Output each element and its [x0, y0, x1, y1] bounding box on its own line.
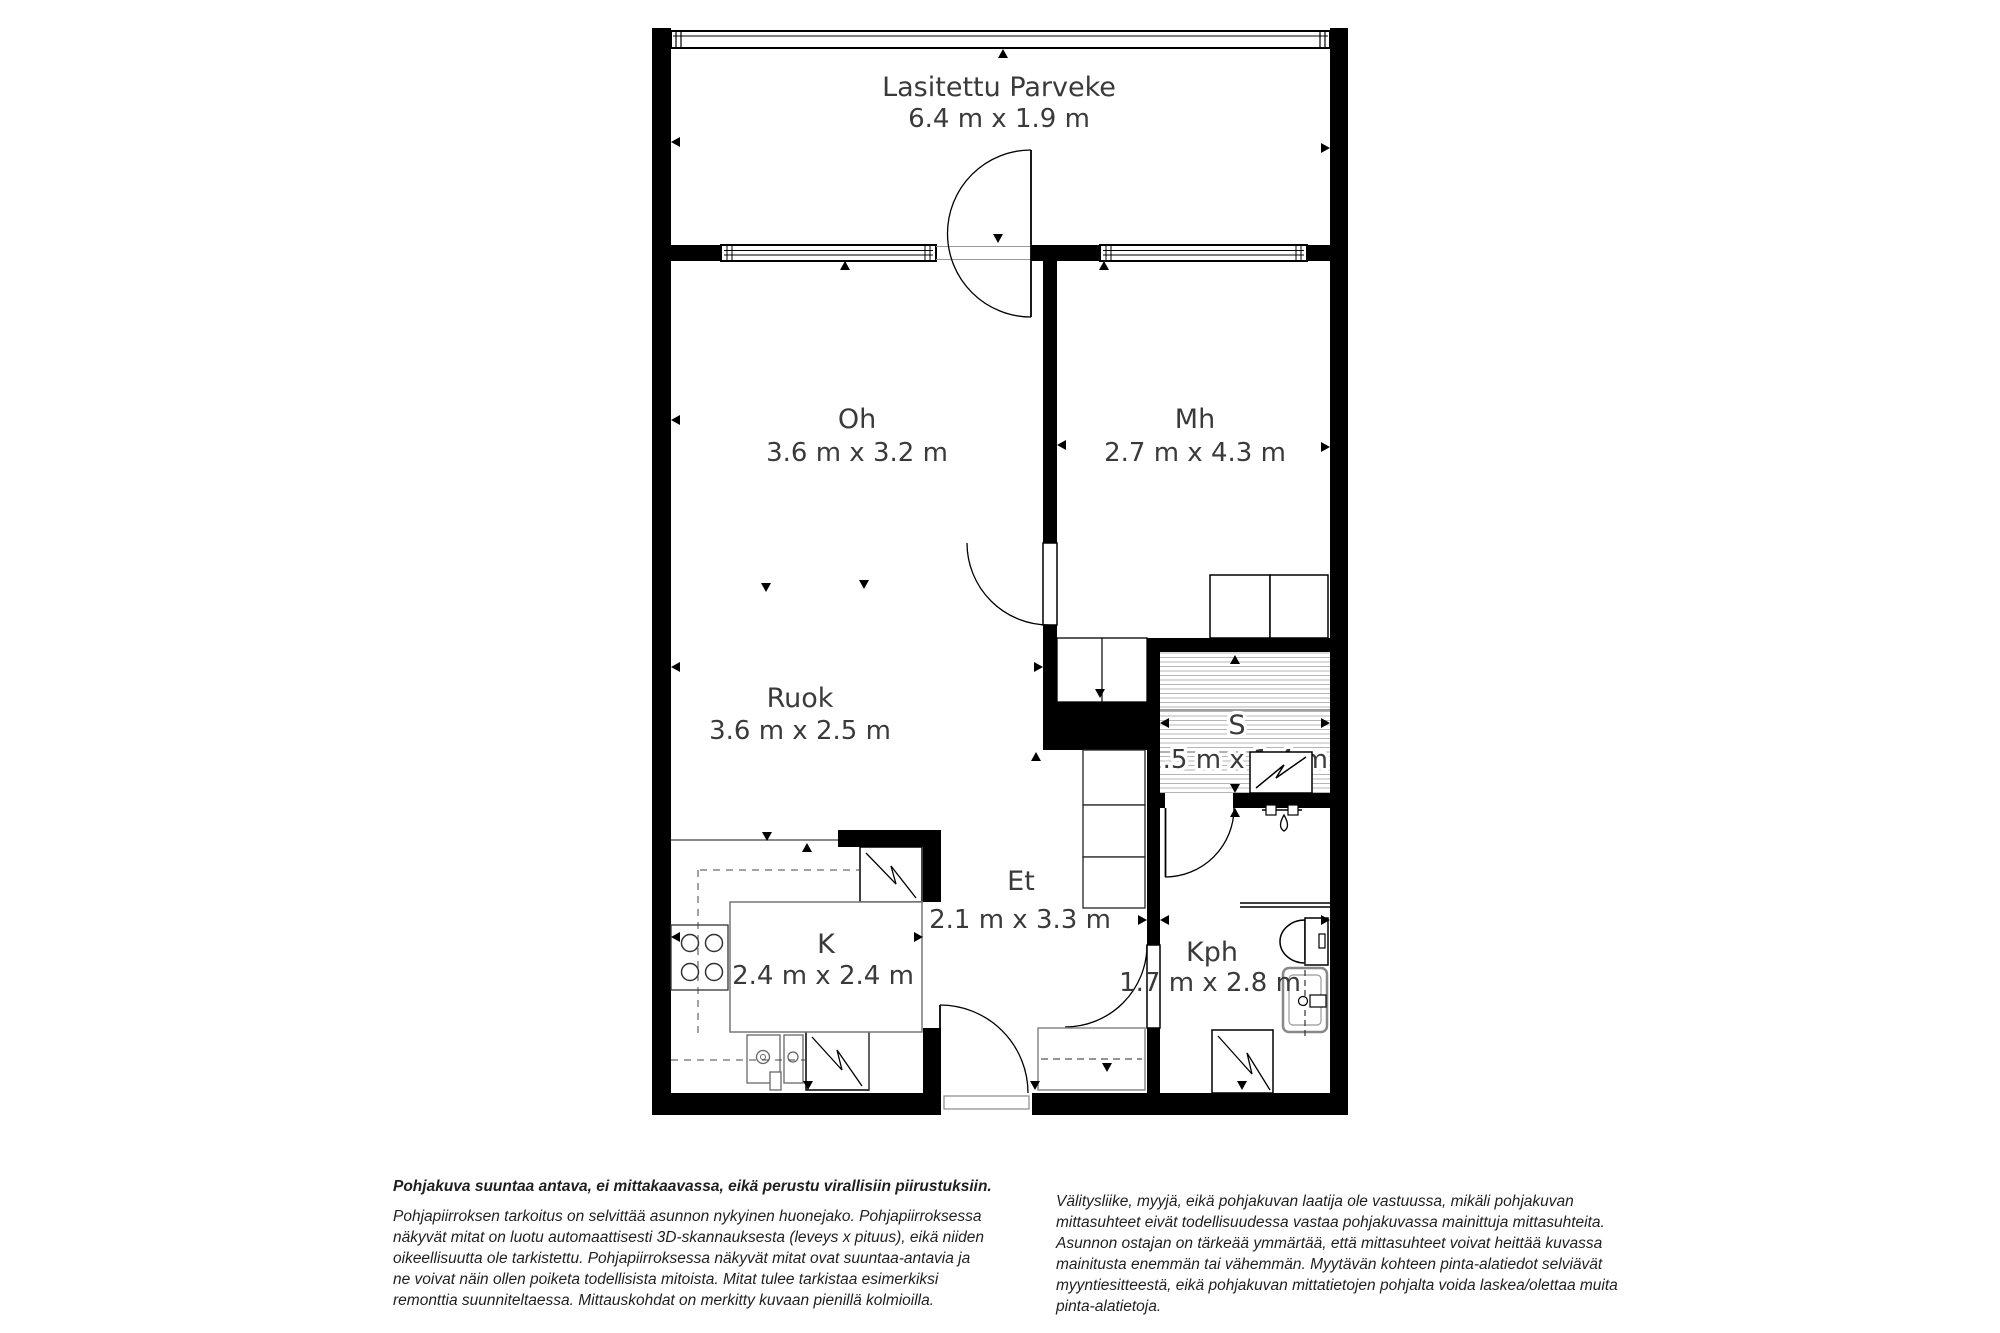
closet-hallway — [1083, 750, 1145, 908]
kitchen-sink-icon — [747, 1035, 803, 1090]
room-label-dining-dims: 3.6 m x 2.5 m — [709, 716, 891, 746]
bedroom-door — [967, 543, 1057, 625]
room-label-livingroom: Oh — [838, 404, 876, 435]
shower-icon — [1262, 805, 1302, 831]
disclaimer-bold-note: Pohjakuva suuntaa antava, ei mittakaavas… — [393, 1176, 1073, 1197]
balcony-glazing — [671, 31, 1330, 48]
entry-door — [940, 1005, 1029, 1109]
room-label-balcony-dims: 6.4 m x 1.9 m — [908, 104, 1090, 134]
room-label-bedroom-dims: 2.7 m x 4.3 m — [1104, 438, 1286, 468]
sauna-door — [1165, 793, 1234, 877]
room-label-hallway-dims: 2.1 m x 3.3 m — [929, 905, 1111, 935]
wardrobe-bedroom — [1210, 575, 1328, 638]
freezer-icon — [806, 1031, 869, 1090]
window-bedroom — [1100, 245, 1307, 261]
disclaimer-left-paragraph: Pohjapiirroksen tarkoitus on selvittää a… — [393, 1206, 1073, 1311]
floor-plan: 1.5 m x 1.4 m — [0, 0, 2000, 1333]
room-label-sauna: S — [1228, 710, 1245, 741]
towel-rail — [1240, 903, 1330, 907]
room-label-dining: Ruok — [767, 683, 834, 714]
room-label-bathroom-dims: 1.7 m x 2.8 m — [1119, 968, 1301, 998]
floor-plan-page: 1.5 m x 1.4 m — [0, 0, 2000, 1333]
room-label-bathroom: Kph — [1186, 937, 1238, 968]
window-livingroom — [721, 245, 936, 261]
room-label-balcony: Lasitettu Parveke — [882, 72, 1116, 103]
sauna-heater-icon — [1250, 752, 1312, 793]
disclaimer-right-paragraph: Välitysliike, myyjä, eikä pohjakuvan laa… — [1056, 1191, 1736, 1317]
toilet-icon — [1280, 918, 1328, 965]
cabinet-hallway — [1038, 1028, 1145, 1090]
room-label-hallway: Et — [1007, 866, 1035, 897]
balcony-door — [936, 150, 1031, 317]
room-label-kitchen-dims: 2.4 m x 2.4 m — [732, 961, 914, 991]
room-label-kitchen: K — [817, 929, 836, 960]
room-label-livingroom-dims: 3.6 m x 3.2 m — [766, 438, 948, 468]
room-label-bedroom: Mh — [1175, 404, 1215, 435]
fridge-icon — [860, 847, 922, 902]
